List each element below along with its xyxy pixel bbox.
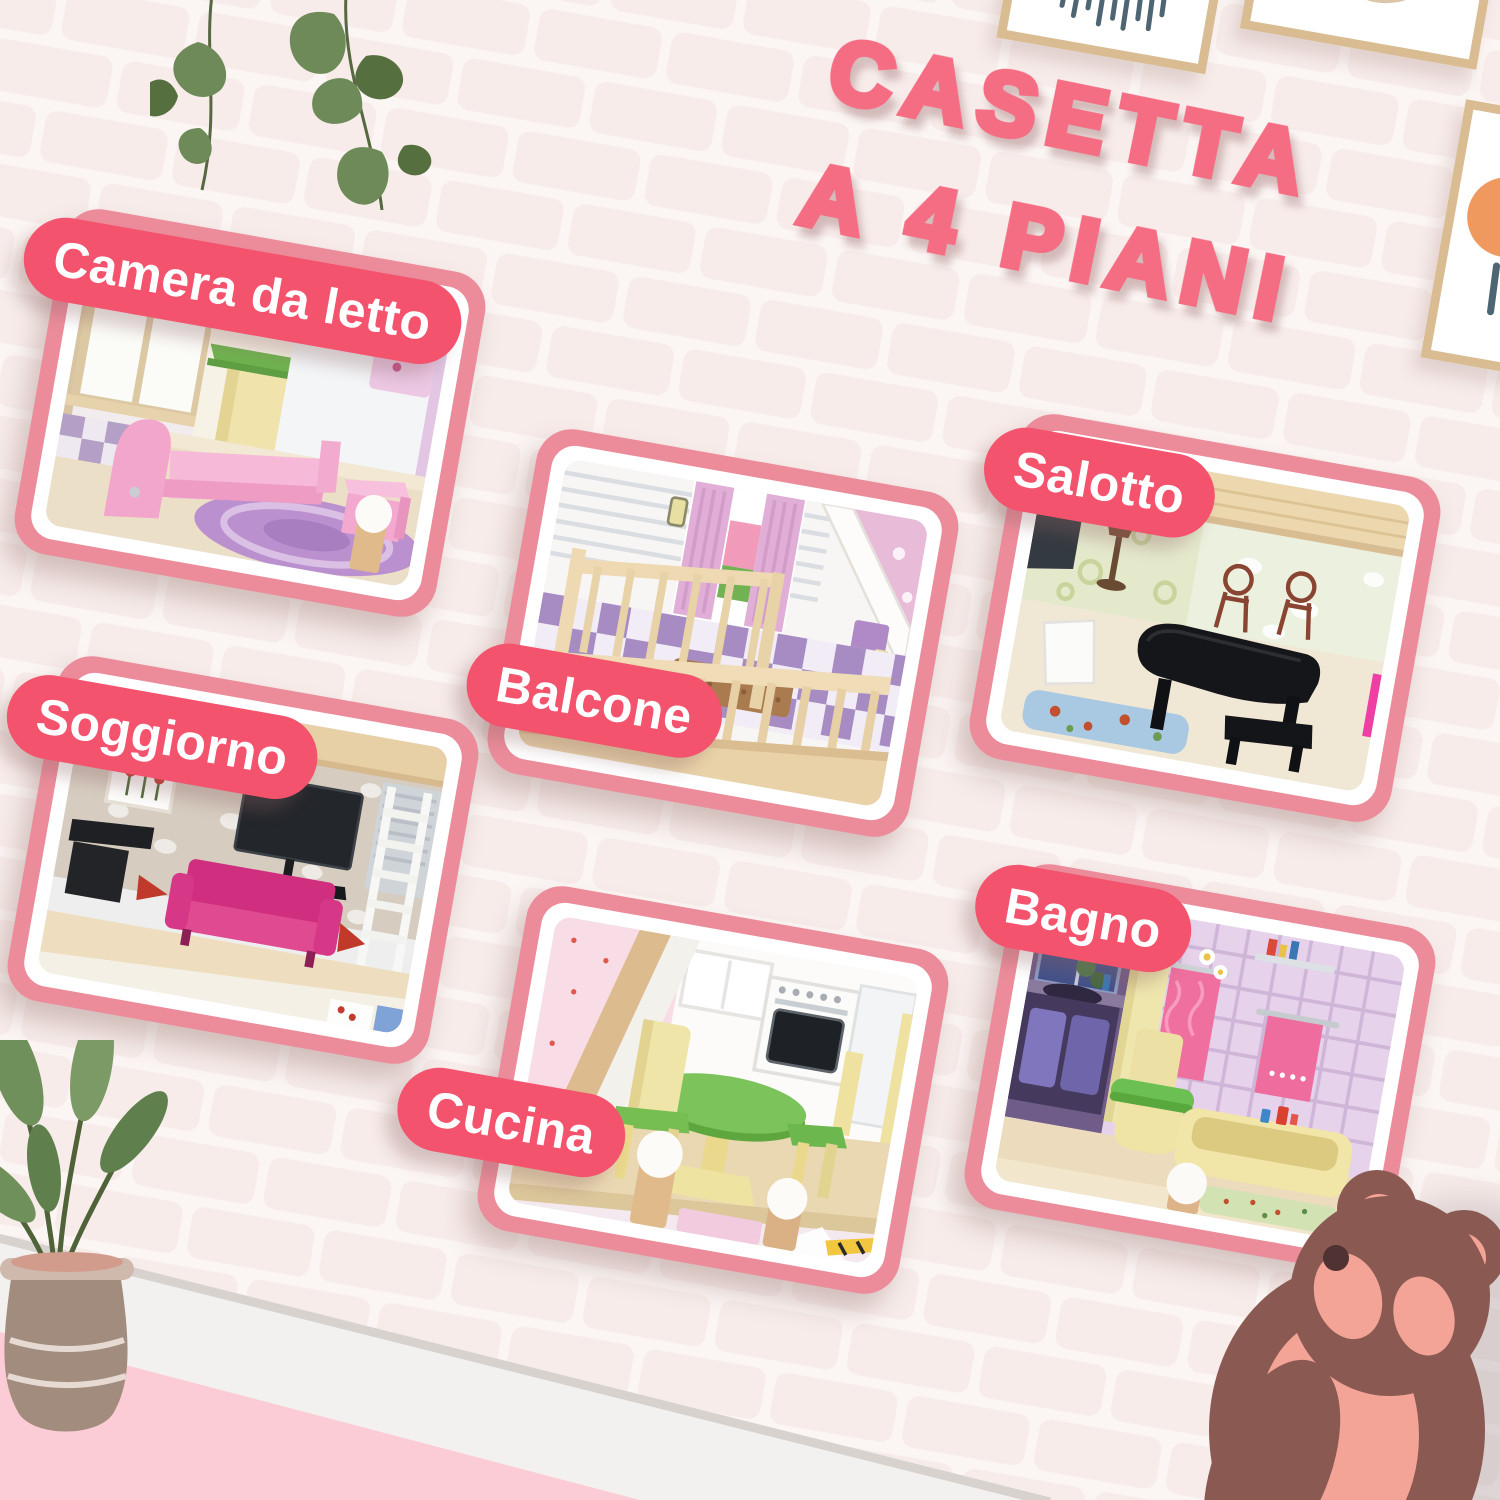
brick xyxy=(1413,415,1500,488)
potted-plant xyxy=(0,1040,198,1500)
brick xyxy=(677,348,808,421)
brick xyxy=(240,1278,371,1351)
room-card-camera-da-letto: Camera da letto xyxy=(9,203,491,622)
brick xyxy=(0,37,114,110)
plant-pot xyxy=(0,1252,134,1432)
brick xyxy=(351,1423,482,1496)
hanging-lines-art xyxy=(1060,0,1172,35)
brick xyxy=(753,298,884,371)
brick xyxy=(566,202,697,275)
brick xyxy=(636,1348,767,1421)
brick xyxy=(885,322,1016,395)
brick xyxy=(262,1156,393,1229)
brick xyxy=(1140,807,1271,880)
hanging-vines xyxy=(150,0,450,235)
brick xyxy=(768,1371,899,1444)
brick xyxy=(489,252,620,325)
brick xyxy=(372,1301,503,1374)
bear-nose xyxy=(1323,1245,1349,1271)
brick xyxy=(1272,830,1403,903)
brick xyxy=(692,1421,823,1494)
teddy-bear xyxy=(1020,1168,1500,1500)
brick xyxy=(185,1205,316,1278)
brick xyxy=(1017,345,1148,418)
brick xyxy=(713,1298,844,1371)
brick xyxy=(0,598,83,671)
product-infographic-poster: CASETTA A 4 PIANI Camera da letto xyxy=(0,0,1500,1500)
room-card-salotto: Salotto xyxy=(964,408,1446,827)
brick xyxy=(207,1083,338,1156)
card-white-frame xyxy=(500,442,945,824)
brick xyxy=(511,130,642,203)
brick xyxy=(459,813,590,886)
teal-line-art xyxy=(1489,266,1499,312)
brick xyxy=(0,86,38,159)
brick xyxy=(1008,784,1139,857)
brick xyxy=(1438,1048,1500,1121)
brick xyxy=(317,1229,448,1302)
brick xyxy=(296,1351,427,1424)
brick xyxy=(449,1252,580,1325)
brick xyxy=(0,0,59,37)
brick xyxy=(1425,732,1500,805)
brick xyxy=(560,1397,691,1470)
brick xyxy=(900,1394,1031,1467)
brick xyxy=(581,1275,712,1348)
brick xyxy=(809,371,940,444)
brick xyxy=(1281,391,1412,464)
brick xyxy=(533,7,664,80)
brick xyxy=(456,57,587,130)
lantern xyxy=(668,497,688,527)
room-card-soggiorno: Soggiorno xyxy=(2,650,484,1069)
brick xyxy=(545,324,676,397)
tan-blob-art xyxy=(1314,0,1458,13)
brick xyxy=(428,1374,559,1447)
brick xyxy=(434,179,565,252)
brick xyxy=(504,1325,635,1398)
orange-circle-art xyxy=(1461,171,1500,264)
room-card-cucina: Cucina xyxy=(472,880,954,1299)
balcony-photo xyxy=(517,458,930,807)
brick xyxy=(824,1444,955,1500)
brick xyxy=(219,1400,350,1473)
brick xyxy=(1149,368,1280,441)
brick xyxy=(845,1322,976,1395)
brick xyxy=(1404,854,1500,927)
brick xyxy=(621,275,752,348)
room-card-balcone: Balcone xyxy=(482,423,964,842)
